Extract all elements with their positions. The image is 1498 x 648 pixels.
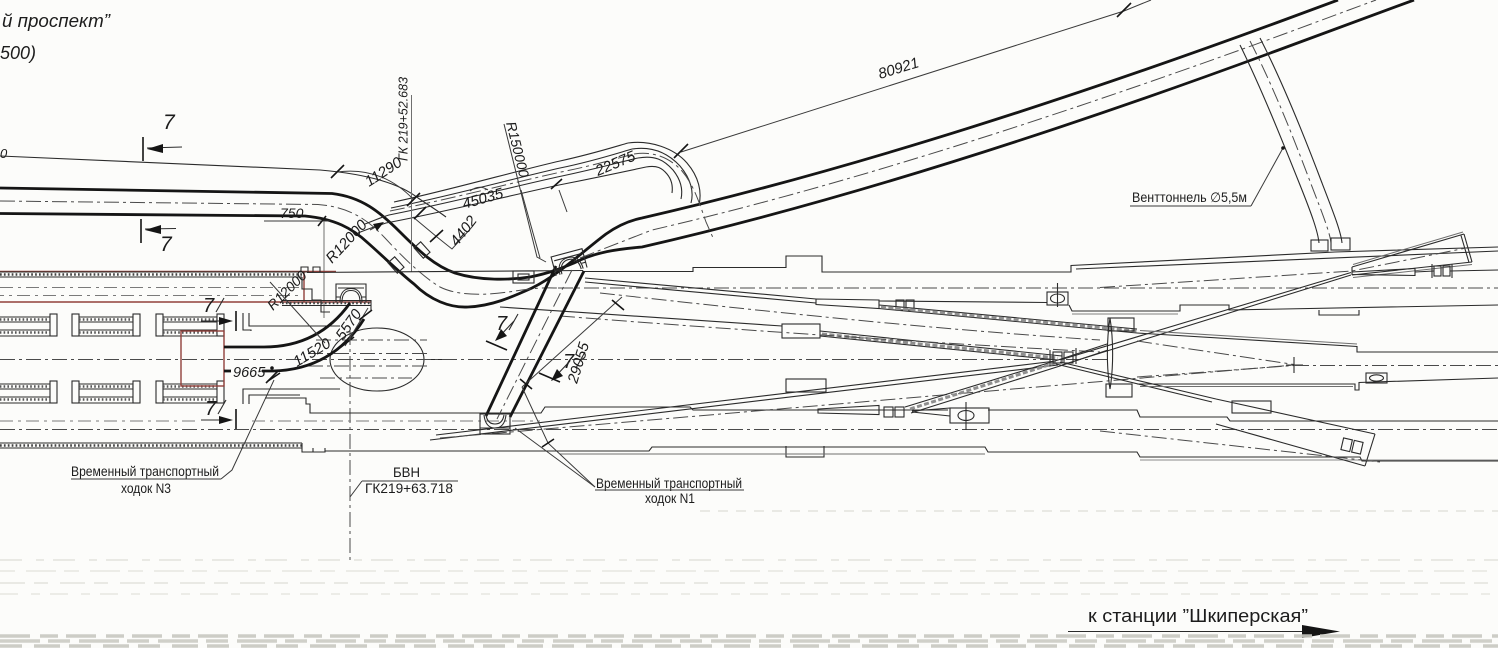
svg-text:ходок N3: ходок N3	[121, 481, 171, 496]
svg-text:БВН: БВН	[393, 464, 420, 480]
svg-text:к станции ”Шкиперская”: к станции ”Шкиперская”	[1088, 606, 1308, 626]
svg-text:7: 7	[205, 398, 217, 420]
svg-text:0: 0	[0, 146, 8, 161]
svg-text:750: 750	[280, 205, 304, 221]
svg-text:7: 7	[160, 233, 173, 256]
svg-text:Временный транспортный: Временный транспортный	[596, 476, 742, 491]
svg-text:ходок N1: ходок N1	[645, 491, 695, 506]
svg-text:7: 7	[163, 111, 176, 134]
svg-text:Венттоннель ∅5,5м: Венттоннель ∅5,5м	[1132, 190, 1247, 205]
svg-text:7: 7	[203, 295, 215, 317]
svg-text:500): 500)	[0, 43, 36, 63]
svg-text:9665: 9665	[233, 365, 266, 381]
svg-text:ГК219+63.718: ГК219+63.718	[365, 480, 453, 496]
svg-text:ГК 219+52.683: ГК 219+52.683	[397, 77, 411, 161]
svg-text:й проспект”: й проспект”	[2, 11, 111, 31]
svg-text:Временный транспортный: Временный транспортный	[71, 464, 219, 479]
